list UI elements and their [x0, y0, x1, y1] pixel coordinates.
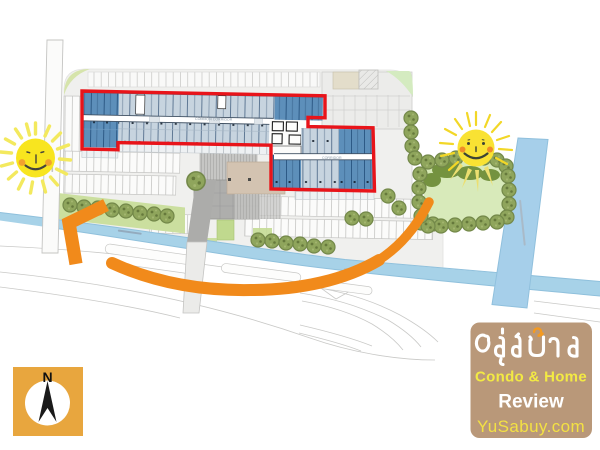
svg-text:CORRIDOR: CORRIDOR	[322, 156, 342, 160]
svg-text:Condo & Home: Condo & Home	[475, 369, 587, 386]
svg-text:COMMON CORRIDOR: COMMON CORRIDOR	[195, 117, 233, 122]
svg-text:YuSabuy.com: YuSabuy.com	[477, 417, 585, 436]
svg-text:Review: Review	[498, 392, 564, 413]
